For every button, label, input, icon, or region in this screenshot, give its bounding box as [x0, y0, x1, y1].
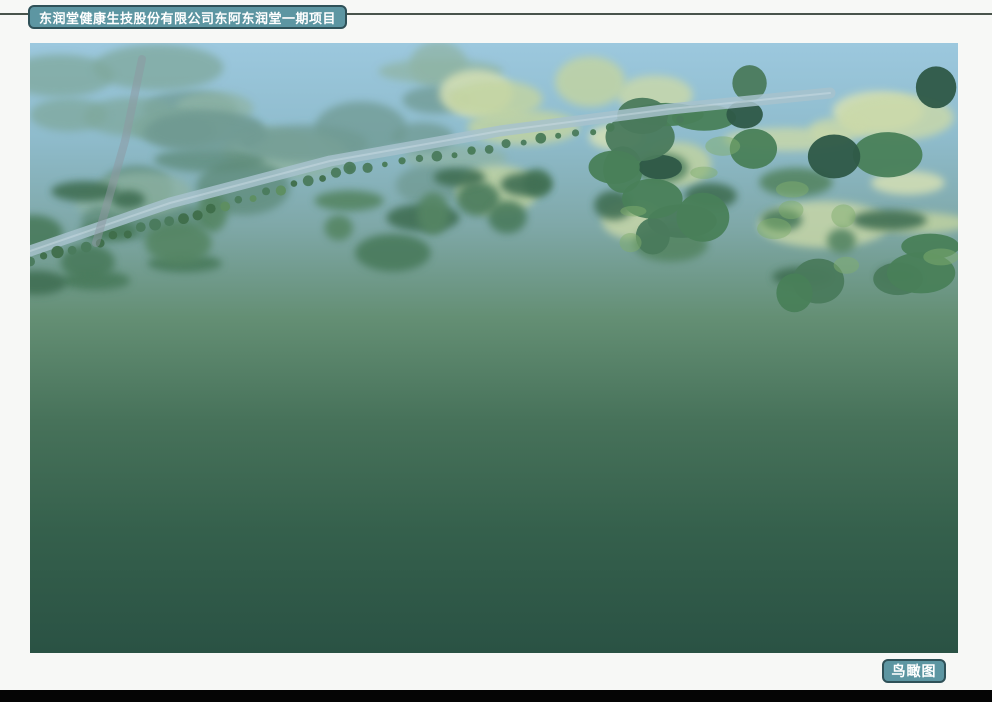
bottom-bar [0, 690, 992, 702]
aerial-rendering-image [30, 43, 958, 653]
presentation-page: 东润堂健康生技股份有限公司东阿东润堂一期项目 鸟瞰图 [0, 0, 992, 702]
project-title-text: 东润堂健康生技股份有限公司东阿东润堂一期项目 [39, 8, 336, 27]
aerial-render-figure [30, 43, 958, 653]
view-label-badge: 鸟瞰图 [882, 659, 946, 683]
view-label-text: 鸟瞰图 [892, 661, 937, 681]
project-title-badge: 东润堂健康生技股份有限公司东阿东润堂一期项目 [28, 5, 347, 29]
